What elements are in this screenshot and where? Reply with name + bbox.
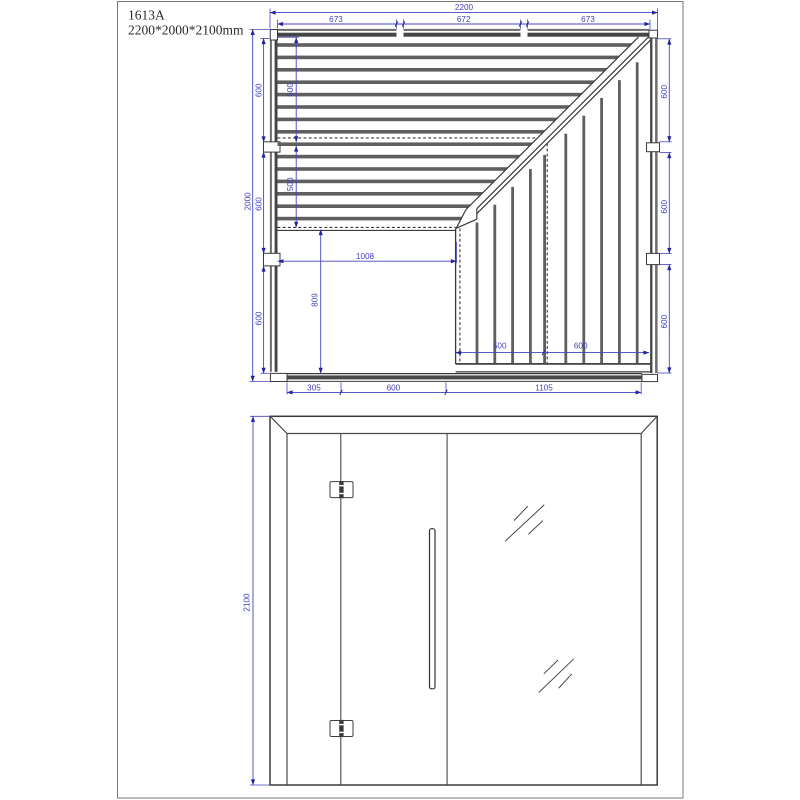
svg-text:1105: 1105 xyxy=(535,383,553,392)
svg-text:600: 600 xyxy=(387,383,401,392)
svg-text:305: 305 xyxy=(307,383,321,392)
svg-text:500: 500 xyxy=(286,177,295,191)
svg-text:600: 600 xyxy=(254,197,263,211)
svg-text:2000: 2000 xyxy=(243,192,252,211)
svg-text:600: 600 xyxy=(574,341,588,350)
svg-text:600: 600 xyxy=(660,314,669,328)
svg-text:2200: 2200 xyxy=(455,3,474,12)
svg-text:809: 809 xyxy=(311,293,320,307)
svg-text:600: 600 xyxy=(254,83,263,97)
svg-text:1613A: 1613A xyxy=(128,8,165,23)
svg-text:2100: 2100 xyxy=(243,593,252,612)
svg-text:600: 600 xyxy=(660,85,669,99)
svg-text:672: 672 xyxy=(457,15,471,24)
svg-text:500: 500 xyxy=(493,341,507,350)
svg-text:673: 673 xyxy=(329,15,343,24)
svg-text:1008: 1008 xyxy=(356,252,375,261)
svg-text:2200*2000*2100mm: 2200*2000*2100mm xyxy=(128,23,244,38)
svg-text:600: 600 xyxy=(660,200,669,214)
svg-text:600: 600 xyxy=(286,83,295,97)
svg-text:600: 600 xyxy=(254,311,263,325)
svg-text:673: 673 xyxy=(581,15,595,24)
